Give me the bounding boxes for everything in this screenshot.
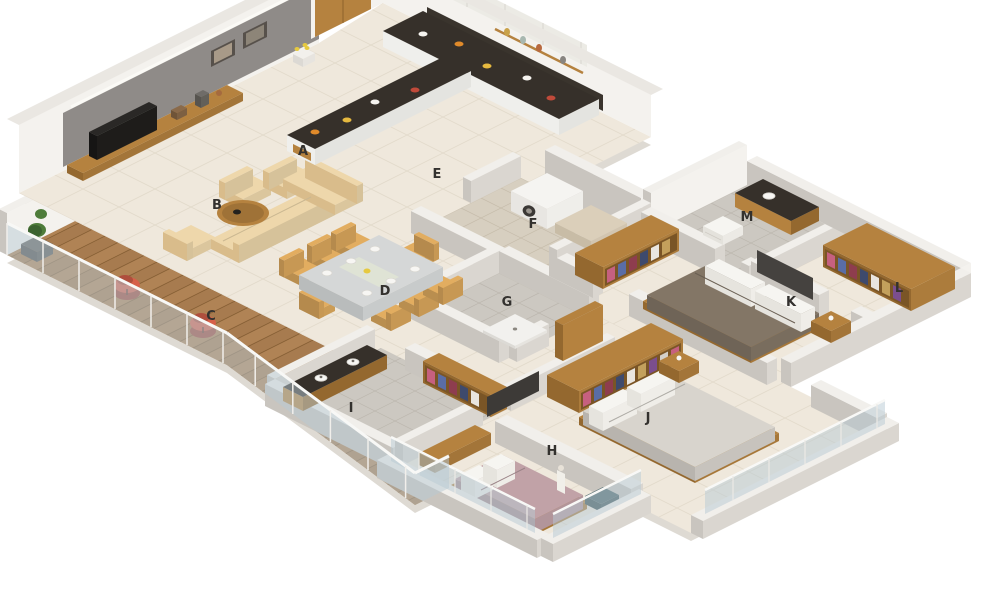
floorplan-render: ABCDEFGHIJKLM (0, 0, 1000, 600)
kitchen-shelf-jar (536, 44, 542, 52)
bedroom-j-lamp (677, 356, 682, 361)
kitchen-shelf-jar (560, 56, 566, 64)
floorplan-root: ABCDEFGHIJKLM (0, 0, 971, 578)
plant-foliage (35, 209, 47, 219)
dinner-plate (362, 290, 372, 296)
person-figure (557, 470, 565, 494)
armchair-3-back-se (187, 241, 193, 261)
room-label-E: E (433, 167, 442, 182)
rightwing-south-wall-kl-sw (781, 358, 791, 387)
table-centerpiece (364, 269, 371, 274)
utility-north-wall-sw (463, 177, 471, 203)
person-figure-head (558, 465, 564, 471)
counter-food-item (343, 118, 352, 123)
room-label-J: J (645, 411, 651, 426)
room-label-K: K (786, 295, 797, 310)
dining-chair-back-sw (438, 286, 443, 306)
flowers (295, 47, 300, 51)
counter-food-item (483, 64, 492, 69)
counter-food-item (455, 42, 464, 47)
dinner-plate (370, 246, 380, 252)
armchair-2-back-sw (263, 170, 269, 190)
dinner-plate (386, 278, 396, 284)
room-label-F: F (529, 217, 538, 232)
bedroom-k-lamp (829, 316, 834, 321)
rightwing-north-wall-sw (549, 246, 557, 280)
dinner-plate (346, 258, 356, 264)
room-label-D: D (380, 284, 391, 299)
coffee-table-decor (233, 210, 241, 215)
dining-chair-back-se (319, 300, 324, 320)
room-label-H: H (547, 444, 558, 459)
room-label-M: M (741, 210, 754, 225)
room-label-C: C (206, 309, 216, 324)
kitchen-shelf-jar (520, 36, 526, 44)
tv-sw (89, 132, 97, 160)
room-label-G: G (502, 295, 513, 310)
bath-i-tap-2 (352, 360, 355, 362)
dinner-plate (410, 266, 420, 272)
dining-chair-back-sw (414, 298, 419, 318)
bath-i-tap-1 (320, 376, 323, 378)
counter-food-item (523, 76, 532, 81)
dining-chair-back-sw (307, 244, 312, 264)
shower-drain (513, 328, 517, 331)
sofa-chaise-back-se (357, 183, 363, 204)
coffee-table-top (222, 203, 264, 223)
counter-food-item (419, 32, 428, 37)
dining-chair-back-sw (279, 258, 284, 278)
corridor-door-sw (555, 321, 563, 361)
bath-m-basin (763, 193, 775, 199)
room-label-A: A (298, 144, 308, 159)
dining-chair-back-se (434, 242, 439, 262)
console-decor-vase (216, 90, 222, 96)
flowers (303, 43, 308, 47)
room-label-L: L (895, 281, 903, 296)
counter-food-item (311, 130, 320, 135)
room-label-B: B (212, 198, 222, 213)
dining-chair-back-sw (386, 312, 391, 332)
floorplan-stage: ABCDEFGHIJKLM (0, 0, 1000, 600)
counter-food-item (547, 96, 556, 101)
counter-food-item (371, 100, 380, 105)
room-label-I: I (349, 401, 354, 416)
balcony-end-wall-sw (0, 209, 7, 255)
sofa-back-sw (233, 242, 239, 263)
dinner-plate (322, 270, 332, 276)
dining-chair-back-sw (331, 232, 336, 252)
armchair-1-back-sw (219, 180, 225, 200)
kitchen-shelf-jar (504, 28, 510, 36)
counter-food-item (411, 88, 420, 93)
